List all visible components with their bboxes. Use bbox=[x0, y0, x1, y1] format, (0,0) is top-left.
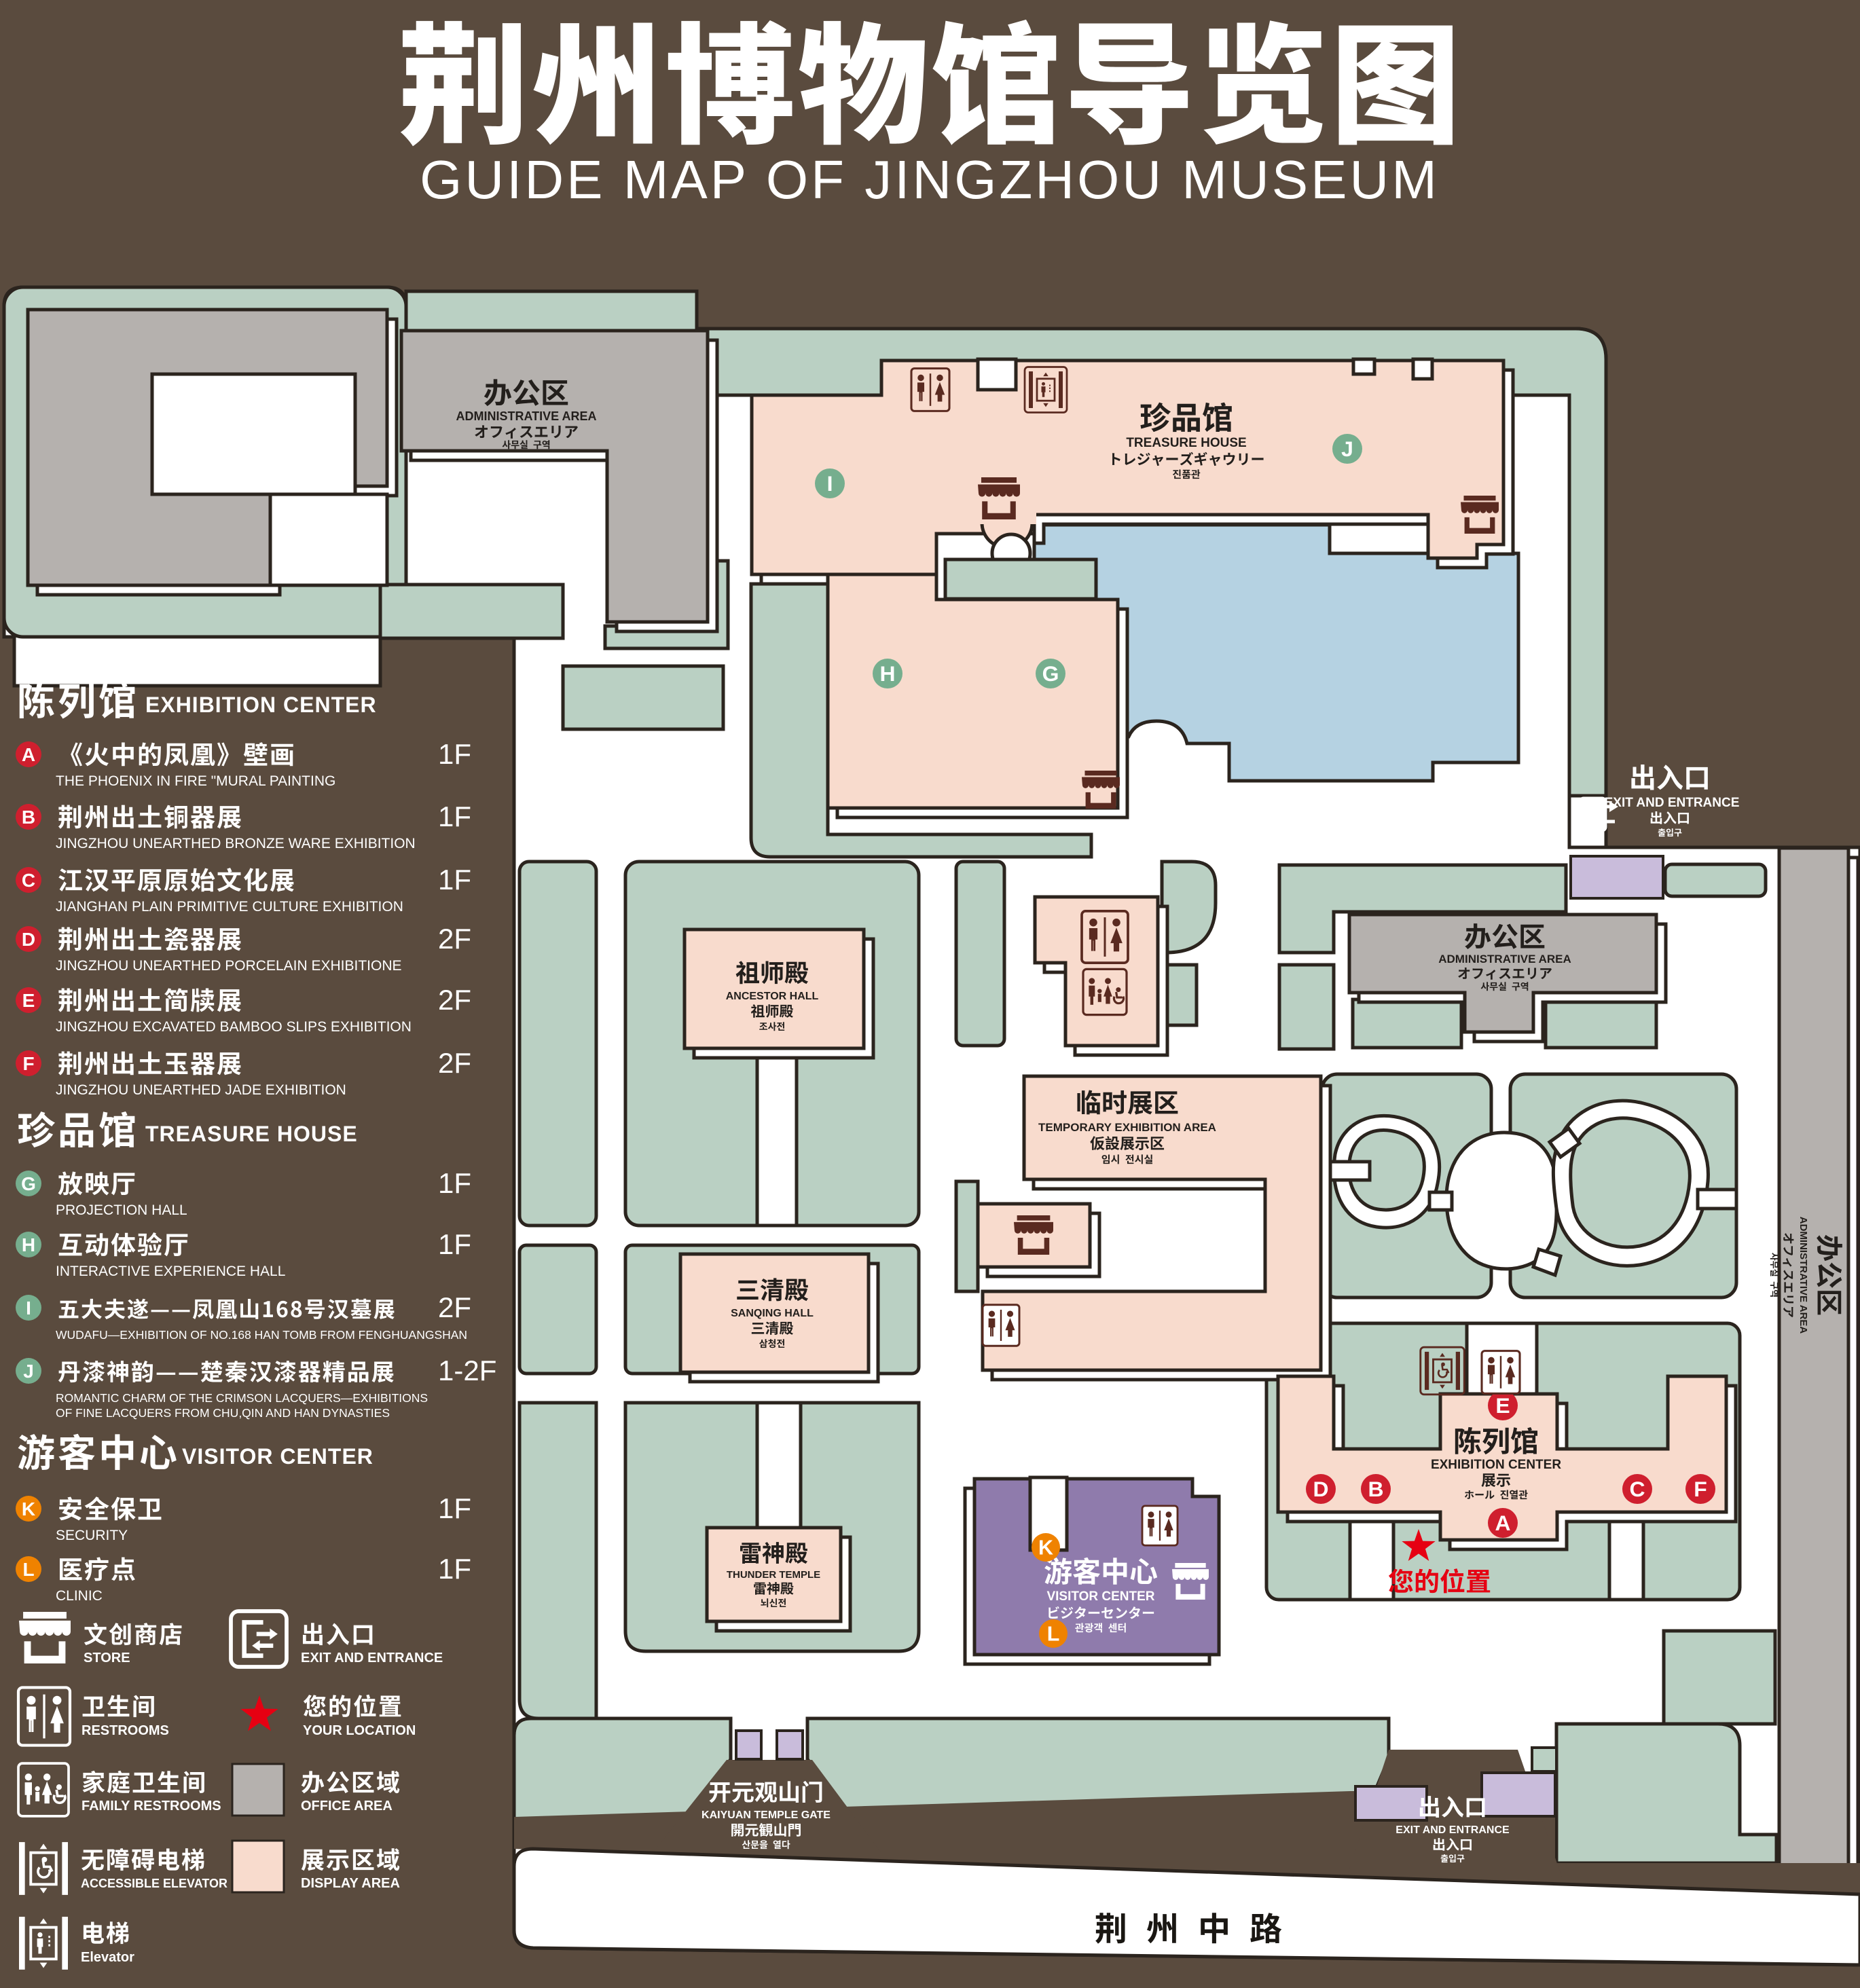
svg-text:ROMANTIC CHARM OF THE CRIMSON: ROMANTIC CHARM OF THE CRIMSON LACQUERS—E… bbox=[56, 1391, 428, 1405]
svg-text:YOUR LOCATION: YOUR LOCATION bbox=[303, 1723, 416, 1738]
svg-text:OF FINE LACQUERS FROM CHU,QIN: OF FINE LACQUERS FROM CHU,QIN AND HAN DY… bbox=[56, 1406, 390, 1420]
svg-text:F: F bbox=[1694, 1477, 1707, 1501]
svg-text:DISPLAY AREA: DISPLAY AREA bbox=[301, 1876, 400, 1891]
svg-text:JINGZHOU EXCAVATED BAMBOO SLIP: JINGZHOU EXCAVATED BAMBOO SLIPS EXHIBITI… bbox=[56, 1019, 412, 1035]
svg-text:1F: 1F bbox=[438, 1167, 471, 1199]
svg-text:SANQING HALL: SANQING HALL bbox=[731, 1308, 814, 1319]
svg-text:G: G bbox=[21, 1173, 36, 1194]
svg-text:1F: 1F bbox=[438, 1553, 471, 1585]
svg-text:ACCESSIBLE ELEVATOR: ACCESSIBLE ELEVATOR bbox=[81, 1877, 227, 1890]
svg-text:GUIDE MAP OF JINGZHOU MUSEUM: GUIDE MAP OF JINGZHOU MUSEUM bbox=[420, 149, 1440, 210]
svg-text:H: H bbox=[22, 1234, 35, 1255]
svg-text:EXIT AND ENTRANCE: EXIT AND ENTRANCE bbox=[1396, 1824, 1510, 1836]
svg-text:KAIYUAN TEMPLE GATE: KAIYUAN TEMPLE GATE bbox=[701, 1809, 831, 1821]
svg-text:G: G bbox=[1042, 661, 1059, 686]
svg-text:JIANGHAN PLAIN PRIMITIVE CULTU: JIANGHAN PLAIN PRIMITIVE CULTURE EXHIBIT… bbox=[56, 899, 403, 915]
svg-text:1F: 1F bbox=[438, 800, 471, 832]
svg-text:JINGZHOU UNEARTHED PORCELAIN E: JINGZHOU UNEARTHED PORCELAIN EXHIBITIONE bbox=[56, 958, 402, 974]
svg-text:L: L bbox=[22, 1559, 34, 1580]
svg-text:EXIT AND ENTRANCE: EXIT AND ENTRANCE bbox=[1605, 796, 1740, 810]
svg-text:C: C bbox=[22, 870, 35, 891]
svg-text:E: E bbox=[1495, 1393, 1510, 1418]
svg-text:1F: 1F bbox=[438, 1228, 471, 1260]
svg-text:ADMINISTRATIVE AREA: ADMINISTRATIVE AREA bbox=[1438, 953, 1571, 965]
svg-text:STORE: STORE bbox=[84, 1651, 130, 1665]
svg-text:TREASURE HOUSE: TREASURE HOUSE bbox=[1126, 436, 1246, 450]
svg-text:2F: 2F bbox=[438, 984, 471, 1016]
svg-text:EXIT AND ENTRANCE: EXIT AND ENTRANCE bbox=[301, 1651, 443, 1665]
svg-text:VISITOR CENTER: VISITOR CENTER bbox=[1046, 1589, 1154, 1604]
svg-text:L: L bbox=[1047, 1623, 1060, 1646]
svg-text:ADMINISTRATIVE AREA: ADMINISTRATIVE AREA bbox=[1798, 1217, 1809, 1334]
svg-text:A: A bbox=[22, 744, 35, 765]
svg-text:I: I bbox=[26, 1297, 31, 1319]
svg-text:1-2F: 1-2F bbox=[438, 1355, 496, 1386]
svg-text:OFFICE AREA: OFFICE AREA bbox=[301, 1799, 393, 1814]
svg-text:B: B bbox=[22, 807, 35, 828]
svg-text:1F: 1F bbox=[438, 1492, 471, 1524]
svg-text:I: I bbox=[827, 471, 833, 496]
svg-text:H: H bbox=[879, 661, 895, 686]
svg-text:E: E bbox=[22, 990, 35, 1011]
svg-text:CLINIC: CLINIC bbox=[56, 1588, 103, 1604]
svg-text:J: J bbox=[1341, 437, 1353, 461]
svg-text:2F: 2F bbox=[438, 923, 471, 955]
svg-text:JINGZHOU UNEARTHED JADE EXHIBI: JINGZHOU UNEARTHED JADE EXHIBITION bbox=[56, 1082, 346, 1098]
svg-text:WUDAFU—EXHIBITION OF NO.168 HA: WUDAFU—EXHIBITION OF NO.168 HAN TOMB FRO… bbox=[56, 1328, 467, 1342]
svg-text:EXHIBITION CENTER: EXHIBITION CENTER bbox=[1431, 1458, 1561, 1472]
svg-text:C: C bbox=[1629, 1477, 1645, 1501]
svg-text:ANCESTOR HALL: ANCESTOR HALL bbox=[726, 991, 819, 1002]
svg-text:1F: 1F bbox=[438, 738, 471, 770]
svg-text:THUNDER TEMPLE: THUNDER TEMPLE bbox=[727, 1569, 820, 1581]
svg-text:K: K bbox=[1038, 1536, 1053, 1560]
svg-text:ADMINISTRATIVE AREA: ADMINISTRATIVE AREA bbox=[456, 409, 597, 423]
svg-text:VISITOR CENTER: VISITOR CENTER bbox=[182, 1444, 373, 1469]
svg-text:FAMILY RESTROOMS: FAMILY RESTROOMS bbox=[81, 1799, 221, 1814]
svg-text:K: K bbox=[22, 1498, 35, 1520]
svg-text:PROJECTION HALL: PROJECTION HALL bbox=[56, 1202, 187, 1218]
svg-text:SECURITY: SECURITY bbox=[56, 1528, 128, 1543]
svg-text:TEMPORARY EXHIBITION AREA: TEMPORARY EXHIBITION AREA bbox=[1038, 1121, 1216, 1134]
svg-text:RESTROOMS: RESTROOMS bbox=[81, 1723, 169, 1738]
svg-text:TREASURE HOUSE: TREASURE HOUSE bbox=[145, 1122, 358, 1146]
svg-text:J: J bbox=[23, 1361, 34, 1382]
svg-text:JINGZHOU UNEARTHED BRONZE WARE: JINGZHOU UNEARTHED BRONZE WARE EXHIBITIO… bbox=[56, 836, 416, 851]
svg-text:B: B bbox=[1368, 1477, 1383, 1501]
svg-text:THE PHOENIX IN FIRE "MURAL PAI: THE PHOENIX IN FIRE "MURAL PAINTING bbox=[56, 773, 335, 789]
svg-text:INTERACTIVE EXPERIENCE HALL: INTERACTIVE EXPERIENCE HALL bbox=[56, 1264, 285, 1279]
svg-text:A: A bbox=[1495, 1511, 1510, 1535]
svg-text:D: D bbox=[22, 929, 35, 950]
svg-text:2F: 2F bbox=[438, 1291, 471, 1323]
svg-text:1F: 1F bbox=[438, 864, 471, 896]
svg-text:F: F bbox=[22, 1053, 34, 1074]
svg-text:D: D bbox=[1313, 1477, 1328, 1501]
svg-text:Elevator: Elevator bbox=[81, 1950, 134, 1965]
svg-text:EXHIBITION CENTER: EXHIBITION CENTER bbox=[145, 693, 377, 717]
svg-text:2F: 2F bbox=[438, 1047, 471, 1079]
